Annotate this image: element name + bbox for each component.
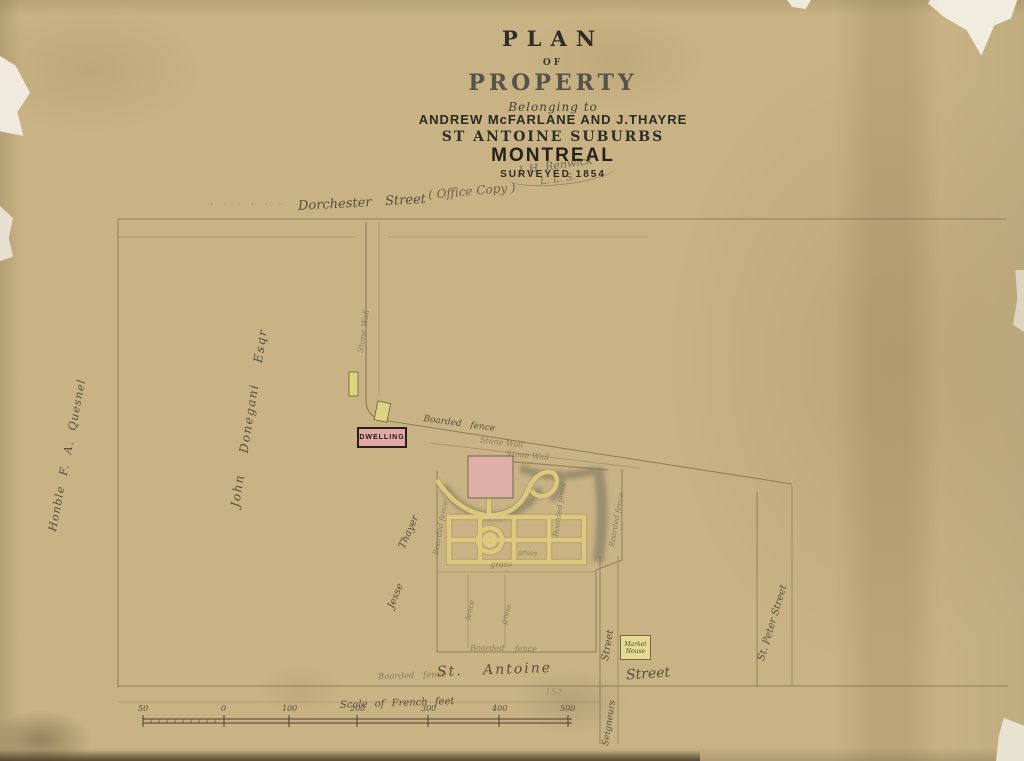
title-suburb: ST ANTOINE SUBURBS (442, 129, 665, 145)
survey-plan-sheet: PLAN OF PROPERTY Belonging to ANDREW McF… (0, 0, 1024, 761)
grass-label-1: grass (490, 560, 512, 570)
scale-tick-50: 50 (138, 704, 148, 713)
boarded-fence-label-garden-south: Boarded fence (470, 643, 537, 653)
paper-discoloration-band (836, 0, 940, 761)
title-of: OF (543, 58, 563, 68)
title-owners: ANDREW McFARLANE AND J.THAYRE (419, 112, 688, 127)
market-house-line2: House (626, 648, 645, 655)
scale-tick-200: 200 (350, 704, 365, 713)
paper-bottom-shadow (0, 750, 700, 761)
st-antoine-street-type: Street (625, 664, 670, 683)
dwelling-label: DWELLING (359, 434, 404, 441)
scale-tick-500: 500 (560, 704, 575, 713)
title-property: PROPERTY (468, 70, 637, 96)
market-house-line1: Market (624, 641, 646, 648)
outbuilding-1 (349, 372, 358, 396)
market-house-building: Market House (620, 635, 651, 660)
outbuilding-2 (374, 401, 391, 422)
dorchester-street-type: Street (385, 192, 427, 209)
pencil-mark: 157 (545, 688, 563, 699)
scale-tick-400: 400 (492, 704, 507, 713)
scale-tick-0: 0 (221, 704, 226, 713)
scale-bar-line (143, 715, 572, 727)
title-plan: PLAN (502, 26, 604, 51)
grass-label-2: grass (518, 548, 538, 557)
scale-tick-300: 300 (421, 704, 436, 713)
survey-dots: · · · · · · (210, 200, 285, 210)
main-house (468, 456, 513, 498)
dwelling-building: DWELLING (357, 427, 407, 448)
scale-tick-100: 100 (282, 704, 297, 713)
